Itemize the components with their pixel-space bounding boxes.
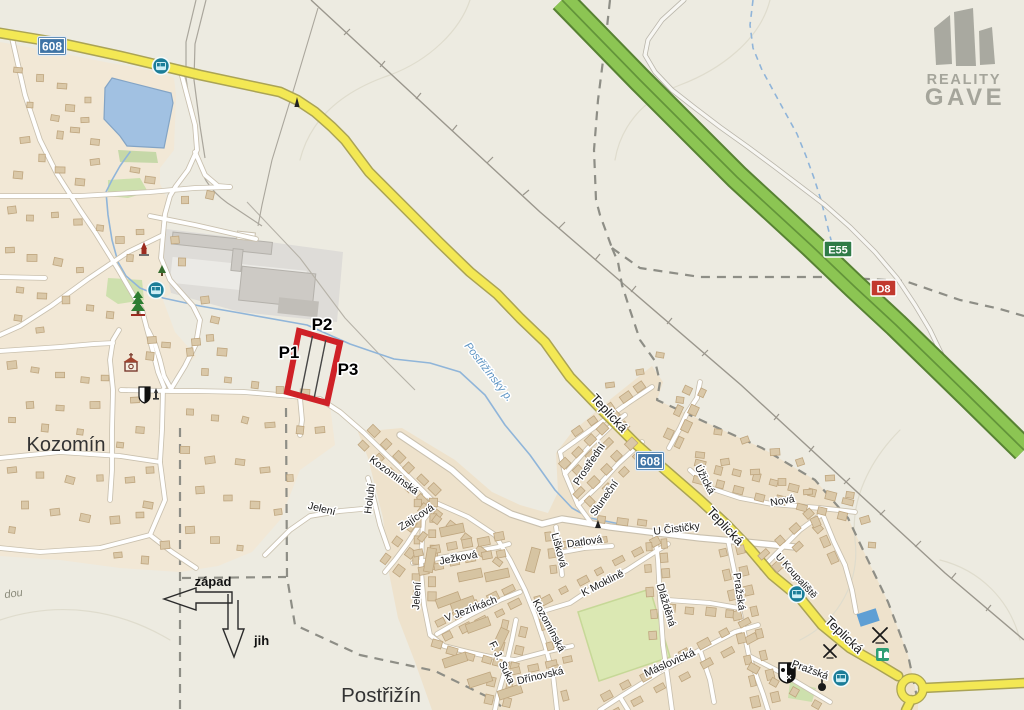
svg-text:E55: E55 — [828, 245, 848, 257]
svg-text:západ: západ — [195, 574, 232, 589]
svg-text:GAVE: GAVE — [925, 84, 1005, 111]
svg-text:Kozomín: Kozomín — [27, 434, 106, 456]
svg-text:P1: P1 — [279, 343, 300, 362]
svg-text:D8: D8 — [876, 284, 890, 296]
svg-text:P3: P3 — [338, 360, 359, 379]
svg-text:608: 608 — [42, 40, 62, 54]
svg-text:P2: P2 — [312, 315, 333, 334]
svg-text:jih: jih — [253, 633, 269, 648]
svg-text:Jelení: Jelení — [410, 581, 424, 610]
svg-text:dou: dou — [4, 587, 24, 601]
svg-text:608: 608 — [640, 455, 660, 469]
svg-text:Postřižín: Postřižín — [341, 684, 421, 707]
